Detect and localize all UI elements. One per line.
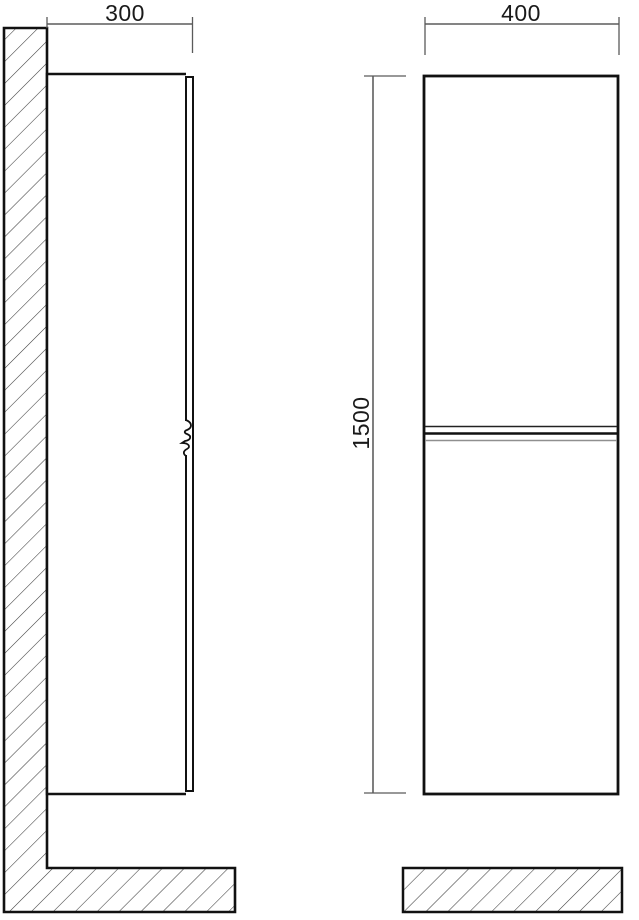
drawing-canvas: 300 400 1500 <box>0 0 639 920</box>
depth-dimension-label: 300 <box>75 0 175 26</box>
front-view <box>403 76 622 912</box>
side-view <box>4 28 235 912</box>
technical-drawing-svg <box>0 0 639 920</box>
front-cabinet-outline <box>424 76 618 794</box>
side-cabinet-body-fill <box>47 74 186 794</box>
width-dimension-label: 400 <box>471 0 571 26</box>
height-dimension-label: 1500 <box>348 373 374 473</box>
floor-section-hatch <box>403 868 622 912</box>
